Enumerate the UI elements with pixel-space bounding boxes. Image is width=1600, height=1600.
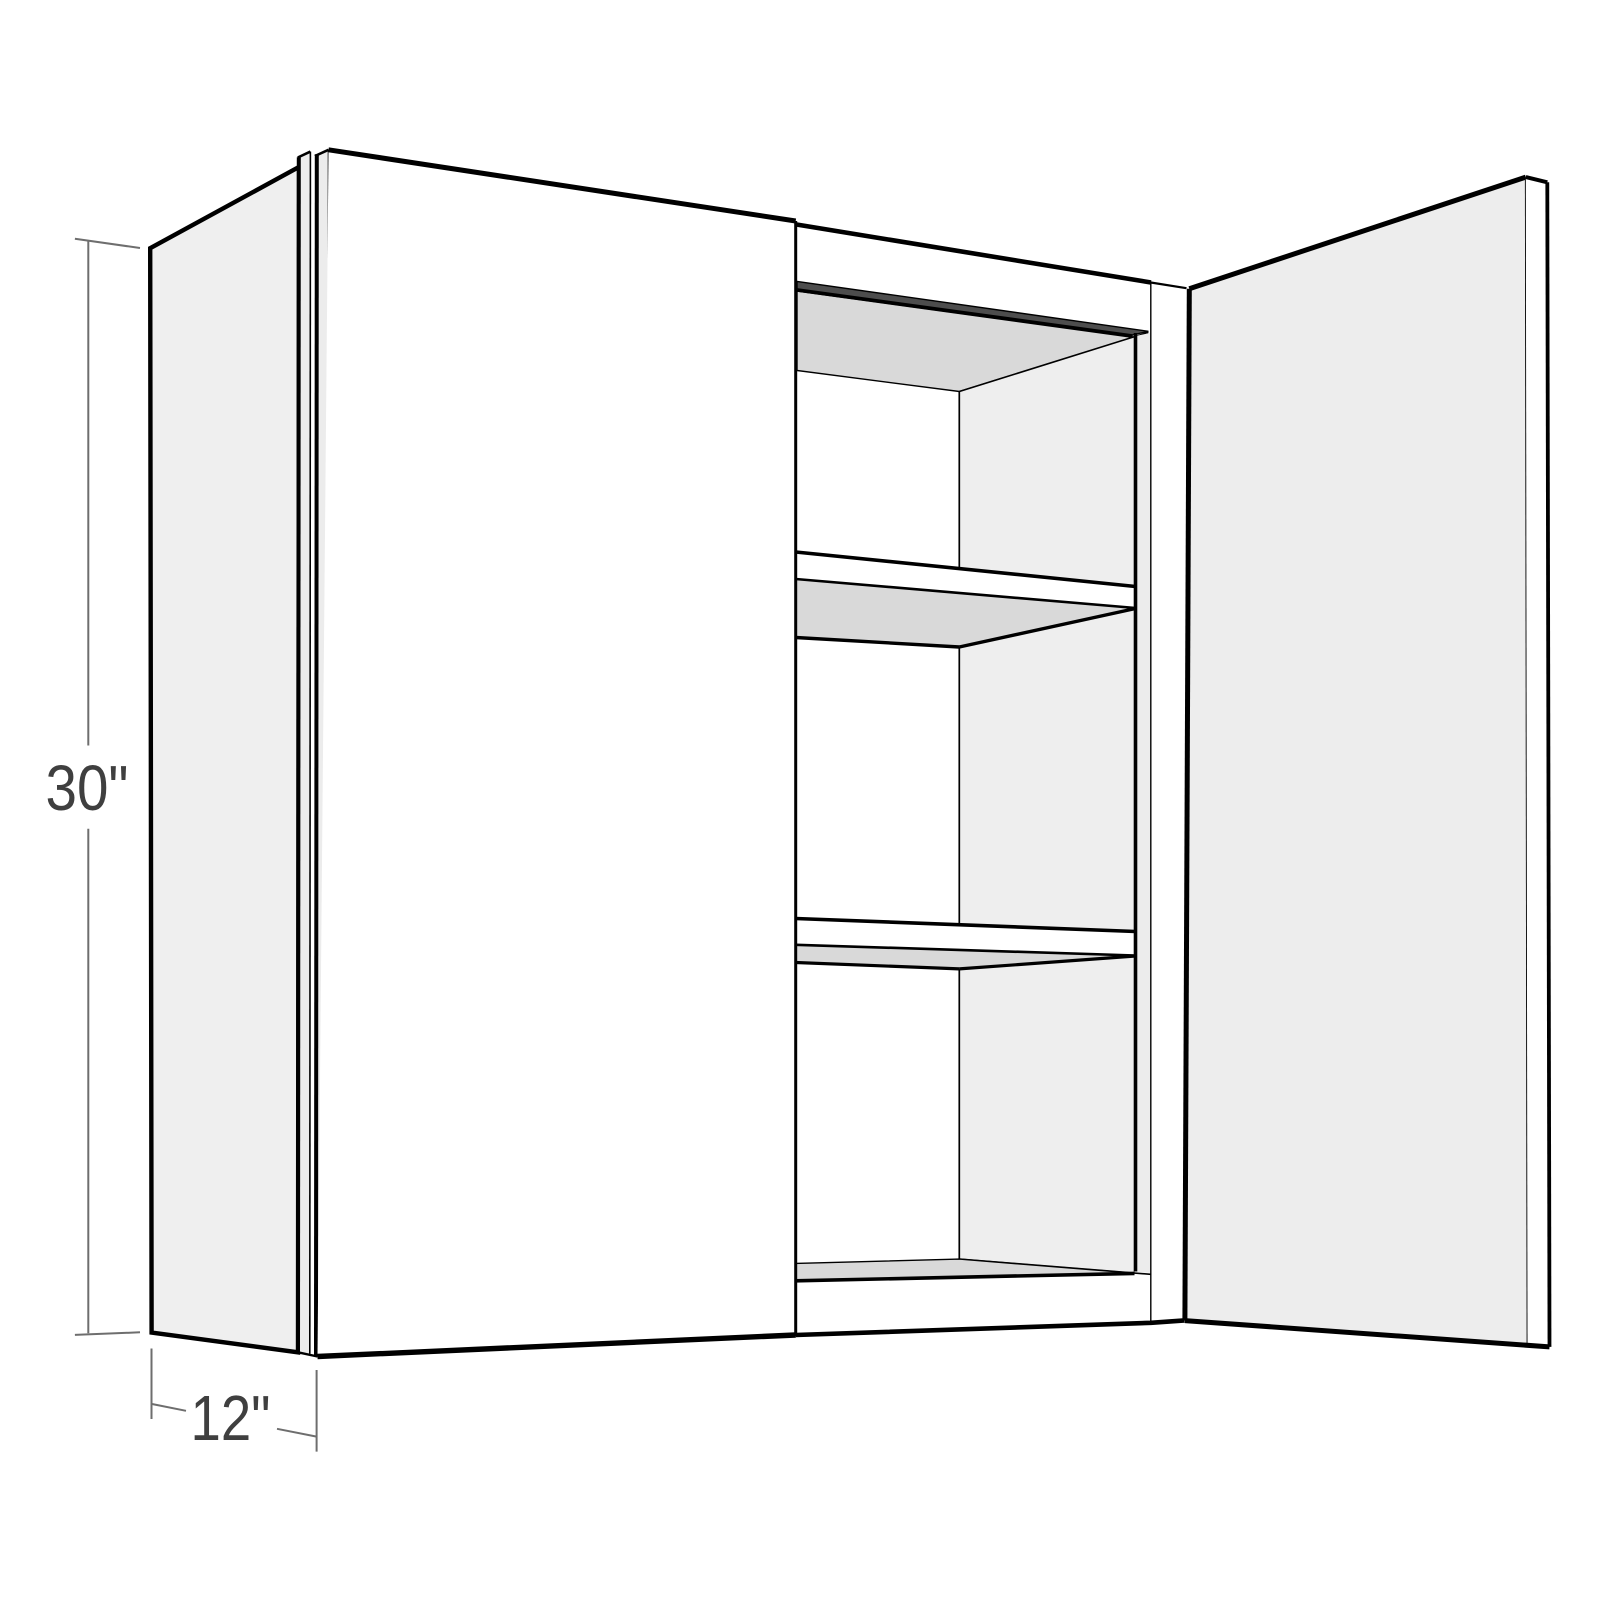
svg-text:30": 30"	[46, 752, 129, 824]
svg-text:12": 12"	[191, 1382, 271, 1454]
